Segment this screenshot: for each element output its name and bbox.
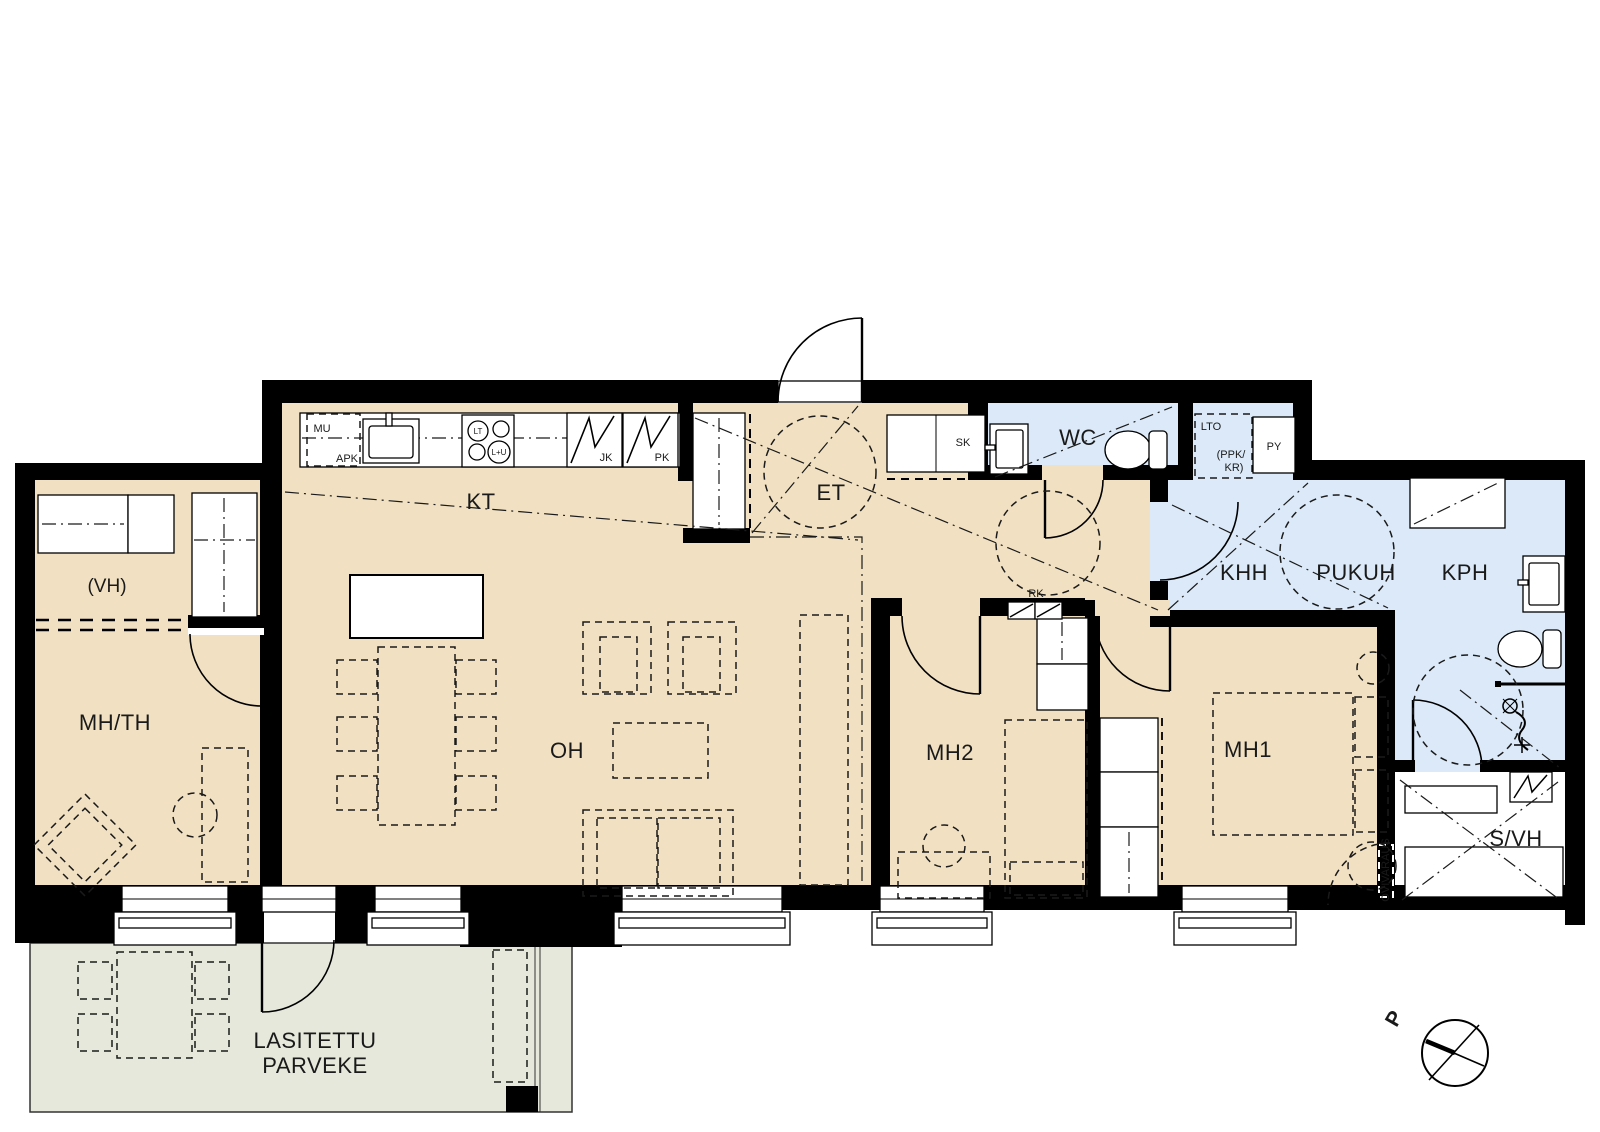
label-entry: ET [816, 480, 845, 505]
label-balcony-2: PARVEKE [262, 1053, 367, 1078]
compass-north-label: P [1381, 1007, 1408, 1031]
mh2-closet-icon [1037, 618, 1088, 710]
label-mu: MU [313, 423, 330, 435]
label-bedroom2: MH2 [926, 740, 974, 765]
label-sk: SK [956, 437, 971, 449]
floor-plan-page: KT ET OH WC KHH PUKUH KPH MH1 MH2 MH/TH … [0, 0, 1600, 1132]
label-oven: L+U [492, 448, 507, 457]
label-kitchen: KT [466, 489, 495, 514]
kph-sink-icon [1518, 556, 1565, 612]
label-balcony-1: LASITETTU [253, 1028, 376, 1053]
vh-wardrobe-icon [38, 495, 174, 553]
label-bathroom: KPH [1442, 560, 1489, 585]
balcony-pillar [506, 1086, 538, 1112]
label-bedroom1: MH1 [1224, 737, 1272, 762]
label-living: OH [550, 738, 584, 763]
label-door-provision: OVIVARAUS [1380, 838, 1392, 901]
window-mh2-icon [872, 886, 992, 945]
kitchen-island [350, 575, 483, 638]
window-kph-niche [1410, 478, 1505, 528]
stove-icon [462, 415, 514, 467]
wc-toilet-icon [1105, 431, 1167, 469]
window-left-icon [367, 886, 469, 945]
label-cooktop: LT [474, 427, 483, 436]
label-freezer: PK [655, 452, 670, 464]
window-mhth-icon [114, 886, 236, 945]
label-dressing: PUKUH [1316, 560, 1396, 585]
label-apk: APK [336, 453, 359, 465]
label-fridge: JK [600, 452, 614, 464]
label-sauna-closet: S/VH [1489, 826, 1542, 851]
electrical-panel-icon [1008, 602, 1062, 619]
freezer-icon [623, 413, 678, 467]
hall-wardrobe-icon [192, 493, 257, 617]
duct-shaft [693, 413, 745, 529]
label-rk: RK [1028, 588, 1044, 600]
kph-toilet-icon [1498, 630, 1561, 668]
sauna-heater-icon [1510, 772, 1552, 802]
floor-plan-drawing: KT ET OH WC KHH PUKUH KPH MH1 MH2 MH/TH … [0, 0, 1600, 1132]
label-py: PY [1267, 441, 1282, 453]
label-ppk1: (PPK/ [1217, 449, 1247, 461]
sink-icon [363, 413, 419, 463]
compass-north-needle [1426, 1041, 1455, 1053]
label-lto: LTO [1201, 421, 1222, 433]
mh1-closet-icon [1100, 718, 1162, 897]
fridge-icon [567, 413, 622, 467]
label-utility: KHH [1220, 560, 1268, 585]
window-living-icon [614, 886, 790, 945]
compass: P [1381, 1007, 1488, 1086]
label-bedroom3: MH/TH [79, 710, 151, 735]
label-ppk2: KR) [1225, 462, 1244, 474]
entrance-door [778, 318, 862, 402]
label-closet-provision: (VH) [87, 576, 126, 597]
label-wc: WC [1059, 425, 1097, 450]
window-mh1-icon [1174, 886, 1296, 945]
